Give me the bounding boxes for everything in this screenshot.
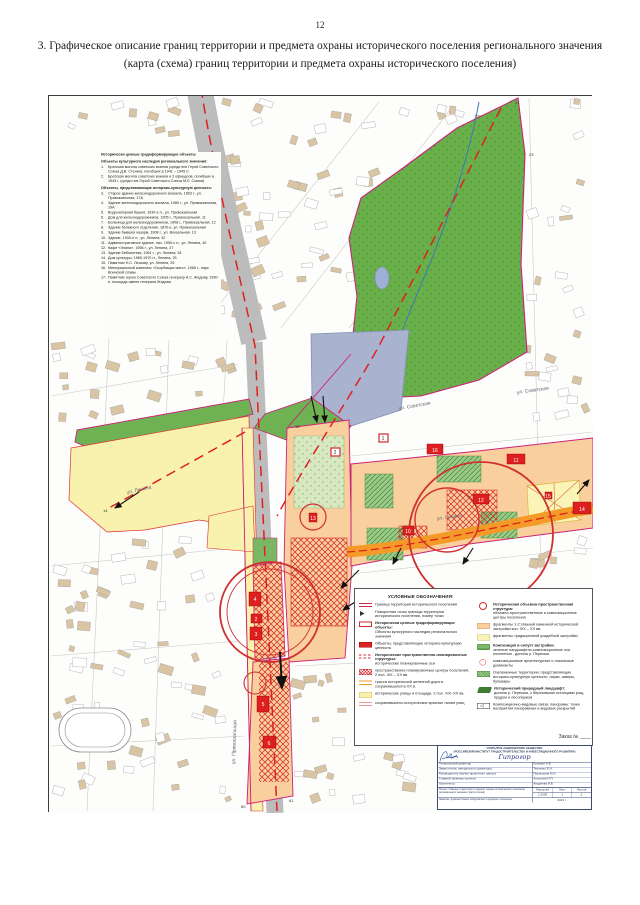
building-footprint [155,732,165,742]
legend-item: Исторические пространственно-планировочн… [359,653,470,666]
legend-item: Исторический природный ландшафт:долина р… [477,687,588,700]
planning-center-hatch [291,538,347,626]
building-footprint [314,124,326,134]
list-item: 10. Здание, 1930-е гг., ул. Ленина, 42 [101,235,221,240]
legend-symbol [359,692,372,698]
svg-text:60: 60 [241,804,246,809]
building-footprint [529,558,539,568]
building-footprint [171,682,181,687]
legend-left-column: Граница территории исторического поселен… [359,603,470,714]
list-item: 2. Братская могила советских воинов и 3 … [101,174,221,183]
building-footprint [146,348,156,356]
svg-text:11: 11 [513,458,518,464]
legend-symbol [477,603,490,609]
square-green-dots [294,436,344,508]
building-footprint [132,539,146,547]
building-footprint [160,365,168,373]
legend-symbol [477,703,490,709]
legend-text: Композиционно-видовые связи, панорамы: т… [493,702,588,711]
legend-item: фрагменты 1-2 этажной каменной историчес… [477,623,588,632]
legend-symbol [477,660,490,666]
objects-group2: 3. Старое здание железнодорожного вокзал… [101,191,221,284]
building-footprint [244,211,251,216]
legend-symbol [477,623,490,629]
legend-item: фрагменты традиционной усадебной застрой… [477,634,588,641]
svg-text:4: 4 [254,597,257,603]
stamp-logo: Гипрогор [438,754,591,761]
building-footprint [245,226,251,232]
legend-symbol [359,702,372,706]
building-footprint [107,761,116,770]
legend-text: исторические улицы и площади, 2 пол. XIX… [375,692,464,696]
legend-text: пространственно-планировочные центры пос… [375,669,470,678]
list-item: 5. Водонапорная башня, 1930-е гг., ул. П… [101,210,221,215]
legend-item: сохранившиеся исторические красные линии… [359,701,470,706]
building-footprint [59,413,67,422]
legend-symbol [359,653,372,659]
legend-text: Объекты, представляющие историко-культур… [375,641,470,650]
legend-text: Исторический природный ландшафт:долина р… [494,687,588,700]
legend-text: Композиция и силуэт застройки:зеленые ла… [493,643,588,656]
legend-item: Граница территории исторического поселен… [359,603,470,608]
legend-text: фрагменты 1-2 этажной каменной историчес… [493,623,588,632]
objects-list: Исторически ценные градоформирующие объе… [101,152,221,338]
list-item: 13. Здание библиотеки, 1961 г., ул. Лени… [101,250,221,255]
legend-item: Композиционно-видовые связи, панорамы: т… [477,702,588,711]
building-footprint [123,766,134,774]
building-footprint [338,708,346,713]
svg-text:5: 5 [262,702,265,708]
building-footprint [574,548,586,555]
stamp-project: Проект: Границы территории и предмет охр… [438,788,533,797]
building-footprint [157,602,166,611]
legend-item: Поворотная точка границы территории исто… [359,610,470,619]
stamp-customer: Заказчик: Администрация Сабуровского гор… [438,798,533,802]
svg-text:61: 61 [289,798,294,803]
building-footprint [548,217,554,226]
stamp-name-row: Андреева И.В. [532,783,591,788]
legend-item: Озелененные территории, представляющие и… [477,671,588,684]
list-item: 8. Здание багажного отделения, 1870-е, у… [101,225,221,230]
building-footprint [219,786,225,794]
building-footprint [90,389,99,398]
building-footprint [129,109,137,118]
building-footprint [550,557,557,564]
legend-text: сохранившиеся исторические красные линии… [375,701,464,705]
svg-text:6: 6 [268,741,271,747]
sheet-label: Лист [553,788,572,792]
legend-symbol [359,642,372,648]
order-number: Заказ № ____ [501,734,591,740]
stamp-names: Кузьмин А.В. Ткаченко Е.Н. Перекшина М.А… [532,763,591,788]
svg-text:14: 14 [103,508,108,513]
legend-text: фрагменты традиционной усадебной застрой… [493,634,578,638]
building-footprint [567,396,578,404]
legend-text: Озелененные территории, представляющие и… [493,671,588,684]
stamp-org: ОТКРЫТОЕ АКЦИОНЕРНОЕ ОБЩЕСТВО«РОССИЙСКИЙ… [438,746,591,754]
building-footprint [171,784,179,791]
legend-right-column: Историческая объемно-пространственная ст… [477,603,588,714]
building-footprint [141,718,150,727]
svg-text:10: 10 [405,529,411,535]
legend-title: УСЛОВНЫЕ ОБОЗНАЧЕНИЯ: [388,594,588,599]
stamp-roles: Генеральный директор Заместитель генерал… [438,763,532,788]
legend-item: пространственно-планировочные центры пос… [359,669,470,678]
building-footprint [230,155,240,164]
building-footprint [533,412,540,421]
title-line-2: (карта (схема) границ территории и предм… [124,58,516,70]
building-footprint [332,738,344,746]
legend-symbol [477,687,492,693]
legend-item: Композиция и силуэт застройки:зеленые ла… [477,643,588,656]
list-item: 17. Памятник герою Советского Союза гене… [101,275,221,284]
legend-text: Историческая объемно-пространственная ст… [493,603,588,620]
building-footprint [168,130,180,137]
station-strip-lower-hatch [259,662,289,782]
building-footprint [263,193,270,200]
building-footprint [66,619,73,628]
building-footprint [75,601,86,611]
building-footprint [356,176,370,186]
svg-text:12: 12 [478,498,484,504]
sheets-label: Листов [572,788,591,792]
building-footprint [539,372,552,382]
page-number: 12 [0,20,640,30]
legend-item: Исторически ценные градоформирующие объе… [359,621,470,638]
scale-label: Масштаб [533,788,552,792]
building-footprint [58,579,71,586]
building-footprint [179,536,192,543]
map-canvas: 4 2 3 5 6 16 11 12 13 14 15 10 1 2 ул. Л… [48,95,592,812]
building-footprint [259,213,273,221]
svg-text:15: 15 [545,494,551,500]
objects-group1-header: Объекты культурного наследия регионально… [101,159,221,164]
document-page: { "page": { "number": "12", "title_line1… [0,0,640,905]
legend-symbol [359,610,372,616]
list-item: 12. Кафе «Элина», 1956 г., ул. Ленина, 3… [101,245,221,250]
list-item: 6. Дом для железнодорожников, 1905 г., П… [101,215,221,220]
legend-item: композиционные архитектурные и локальные… [477,659,588,668]
building-footprint [525,371,539,376]
legend-item: Историческая объемно-пространственная ст… [477,603,588,620]
building-footprint [330,789,335,796]
building-footprint [402,782,416,792]
svg-text:13: 13 [310,516,316,522]
small-pond [375,267,389,289]
legend-symbol [477,644,490,650]
building-footprint [62,384,69,390]
map-legend: УСЛОВНЫЕ ОБОЗНАЧЕНИЯ: Граница территории… [354,588,593,746]
building-footprint [215,716,226,724]
building-footprint [134,642,146,648]
building-footprint [157,641,168,646]
legend-text: Исторические пространственно-планировочн… [375,653,470,666]
legend-item: трасса исторической железной дороги, сох… [359,680,470,689]
building-footprint [297,276,306,282]
legend-symbol [359,622,372,628]
legend-symbol [359,603,372,607]
building-footprint [574,98,580,104]
building-footprint [72,658,86,667]
list-item: 16. Мемориальный комплекс «Скорбящая мат… [101,265,221,274]
title-block: ОТКРЫТОЕ АКЦИОНЕРНОЕ ОБЩЕСТВО«РОССИЙСКИЙ… [437,745,592,810]
building-footprint [312,717,319,723]
stamp-role-row: Архитектор [438,783,532,788]
building-footprint [352,794,365,804]
legend-text: композиционные архитектурные и локальные… [493,659,588,668]
svg-text:23: 23 [529,152,534,157]
signature-scribble [438,746,460,766]
svg-text:2: 2 [334,450,337,456]
sheets-value: 2 [572,793,591,797]
title-line-1: 3. Графическое описание границ территори… [38,40,602,52]
legend-symbol [477,635,490,641]
stamp-year: 2021 г. [533,798,591,802]
building-footprint [557,388,569,397]
svg-text:2: 2 [255,617,258,623]
list-item: 11. Административное здание, нач. 1950-х… [101,240,221,245]
legend-text: Исторически ценные градоформирующие объе… [375,621,470,638]
building-footprint [121,574,136,584]
building-footprint [278,212,290,218]
legend-text: Граница территории исторического поселен… [375,603,457,607]
building-footprint [77,621,90,631]
list-item: 9. Здание бывших казарм, 1908 г., ул. Во… [101,230,221,235]
legend-text: Поворотная точка границы территории исто… [375,610,470,619]
svg-text:16: 16 [432,448,438,454]
building-footprint [526,362,533,369]
page-title: 3. Графическое описание границ территори… [20,38,620,74]
building-footprint [449,106,455,114]
building-footprint [195,391,202,396]
legend-item: исторические улицы и площади, 2 пол. XIX… [359,692,470,699]
legend-symbol [477,671,490,677]
building-footprint [94,702,100,708]
building-footprint [301,263,312,268]
building-footprint [52,353,60,362]
sheet-value: 1 [553,793,572,797]
svg-text:15: 15 [295,424,300,429]
objects-group1: 1. Братская могила советских воинов (сре… [101,165,221,184]
building-footprint [392,754,404,763]
list-item: 1. Братская могила советских воинов (сре… [101,165,221,174]
list-item: 14. Дом культуры, 1969-1970 гг., Ленина,… [101,255,221,260]
objects-group2-header: Объекты, представляющие историко-культур… [101,186,221,191]
list-item: 3. Старое здание железнодорожного вокзал… [101,191,221,200]
stadium [59,708,131,752]
legend-text: трасса исторической железной дороги, сох… [375,680,470,689]
building-footprint [343,113,351,123]
building-footprint [77,762,85,770]
list-item: 15. Памятник Н.С. Лескову, ул. Ленина, 2… [101,260,221,265]
legend-item: Объекты, представляющие историко-культур… [359,641,470,650]
building-footprint [436,104,446,114]
svg-text:14: 14 [579,507,585,513]
objects-list-title: Исторически ценные градоформирующие объе… [101,152,221,157]
list-item: 4. Здание железнодорожного вокзала, 1980… [101,201,221,210]
svg-text:1: 1 [382,436,385,442]
list-item: 7. Больница для железнодорожников, 1908 … [101,220,221,225]
svg-text:3: 3 [255,632,258,638]
building-footprint [527,294,537,300]
legend-symbol [359,669,372,675]
legend-symbol [359,681,372,686]
building-footprint [60,373,68,379]
building-footprint [331,111,342,119]
scale-value: 1:2000 [533,793,552,797]
svg-text:21: 21 [515,100,520,105]
building-footprint [185,595,195,604]
